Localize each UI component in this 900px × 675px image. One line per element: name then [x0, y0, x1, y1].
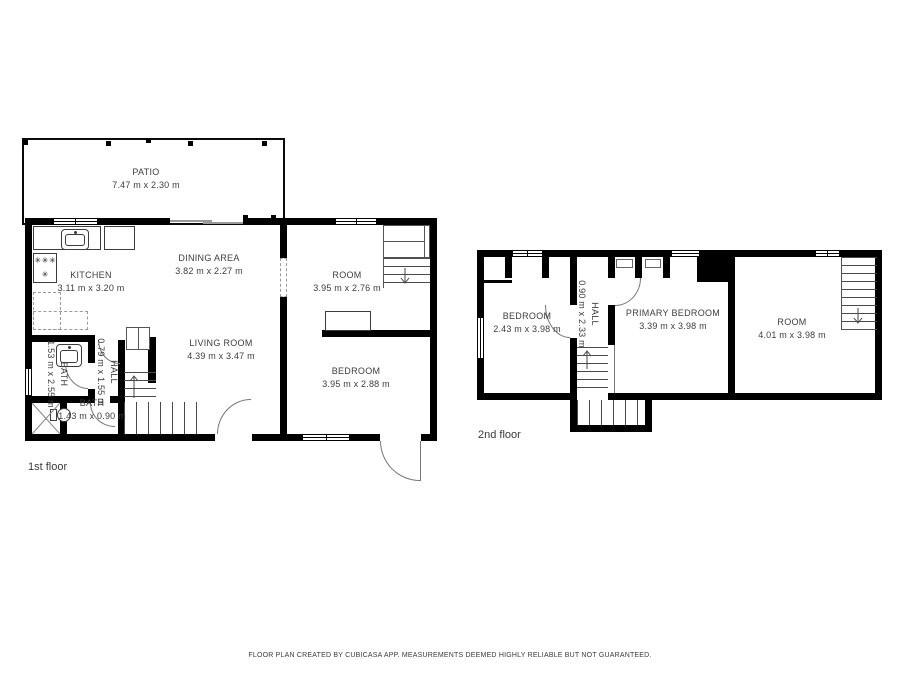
stair-treads [577, 400, 645, 425]
burner-icon: ✳ [42, 271, 49, 279]
room-name: DINING AREA [175, 252, 243, 265]
room-name: LIVING ROOM [187, 337, 255, 350]
floor-label-2nd: 2nd floor [478, 429, 521, 441]
room-name: PATIO [112, 166, 180, 179]
room-label-hall-2: HALL 0.90 m x 2.33 m [543, 301, 633, 327]
burner-icon: ✳ [49, 257, 56, 265]
wall [280, 297, 287, 434]
window [335, 218, 377, 225]
room-name: KITCHEN [58, 269, 125, 282]
wall [322, 330, 437, 337]
window [477, 317, 484, 359]
room-name: HALL [588, 269, 601, 359]
floor-plan-canvas: ✳✳✳✳ PATIO 7.47 m x 2.30 m KITCHEN 3.11 … [0, 0, 900, 675]
exterior-door-arc [380, 441, 420, 481]
closet-wall [635, 257, 642, 278]
wall [98, 218, 170, 225]
room-label-hall: HALL 0.79 m x 1.55 m [62, 359, 152, 385]
room-label-dining-area: DINING AREA 3.82 m x 2.27 m [175, 252, 243, 278]
room-label-room: ROOM 3.95 m x 2.76 m [313, 269, 381, 295]
wall [543, 250, 671, 257]
door-leaf [420, 441, 421, 481]
counter-outline [33, 311, 88, 330]
floor-label-1st: 1st floor [28, 461, 67, 473]
room-label-room-2: ROOM 4.01 m x 3.98 m [758, 316, 826, 342]
room-dims: 3.11 m x 3.20 m [58, 282, 125, 295]
patio-post [188, 141, 193, 146]
room-dims: 3.39 m x 3.98 m [626, 320, 720, 333]
wall [700, 250, 815, 257]
cased-opening [280, 258, 287, 297]
room-dims: 7.47 m x 2.30 m [112, 179, 180, 192]
patio-post [146, 138, 151, 143]
kitchen-appliance [104, 226, 135, 250]
room-dims: 3.82 m x 2.27 m [175, 265, 243, 278]
wall [840, 250, 882, 257]
room-name: BATH [58, 397, 126, 410]
window [302, 434, 350, 441]
wall [25, 218, 32, 368]
wall [243, 218, 335, 225]
window [815, 250, 840, 257]
wall [252, 434, 302, 441]
burner-icon: ✳ [34, 257, 41, 265]
room-name: PRIMARY BEDROOM [626, 307, 720, 320]
stair-direction-arrow [852, 308, 864, 326]
room-name: ROOM [758, 316, 826, 329]
wall [645, 393, 652, 432]
room-name: ROOM [313, 269, 381, 282]
wall [377, 218, 437, 225]
room-label-patio: PATIO 7.47 m x 2.30 m [112, 166, 180, 192]
patio-post [262, 141, 267, 146]
room-dims: 1.53 m x 2.55 m [44, 329, 57, 419]
room-label-living-room: LIVING ROOM 4.39 m x 3.47 m [187, 337, 255, 363]
closet-wall [542, 257, 549, 278]
door-arc [217, 399, 251, 434]
wall [477, 250, 512, 257]
room-dims: 1.43 m x 0.90 m [58, 410, 126, 423]
closet-shelf [645, 259, 661, 268]
wall [350, 434, 380, 441]
closet-wall [484, 280, 512, 283]
window [53, 218, 98, 225]
patio-post [23, 140, 28, 145]
room-dims: 3.95 m x 2.76 m [313, 282, 381, 295]
stair-landing [126, 327, 150, 350]
sliding-door [203, 222, 243, 224]
kitchen-sink [61, 229, 89, 250]
chimney [697, 257, 733, 282]
wall [421, 434, 437, 441]
wall [477, 359, 484, 393]
fireplace [325, 311, 371, 331]
patio-post [106, 141, 111, 146]
closet-wall [505, 257, 512, 278]
wall [477, 257, 484, 317]
wall [280, 225, 287, 258]
window [671, 250, 700, 257]
window [512, 250, 543, 257]
burner-icon: ✳ [42, 257, 49, 265]
wall [570, 425, 652, 432]
stove: ✳✳✳✳ [33, 253, 57, 283]
footer-disclaimer: FLOOR PLAN CREATED BY CUBICASA APP. MEAS… [0, 652, 900, 659]
room-label-bedroom: BEDROOM 3.95 m x 2.88 m [322, 365, 390, 391]
room-name: BEDROOM [322, 365, 390, 378]
closet-wall [663, 257, 670, 278]
stair-direction-arrow [399, 268, 411, 286]
room-dims: 0.90 m x 2.33 m [575, 269, 588, 359]
wall [608, 257, 615, 278]
room-label-bath-small: BATH 1.43 m x 0.90 m [58, 397, 126, 423]
room-dims: 4.01 m x 3.98 m [758, 329, 826, 342]
room-label-primary-bedroom: PRIMARY BEDROOM 3.39 m x 3.98 m [626, 307, 720, 333]
stair-edge [614, 345, 615, 393]
stair-landing [383, 225, 430, 258]
wall [477, 393, 572, 400]
room-dims: 3.95 m x 2.88 m [322, 378, 390, 391]
room-dims: 4.39 m x 3.47 m [187, 350, 255, 363]
closet-shelf [616, 259, 633, 268]
stair-treads [124, 402, 206, 434]
room-label-kitchen: KITCHEN 3.11 m x 3.20 m [58, 269, 125, 295]
